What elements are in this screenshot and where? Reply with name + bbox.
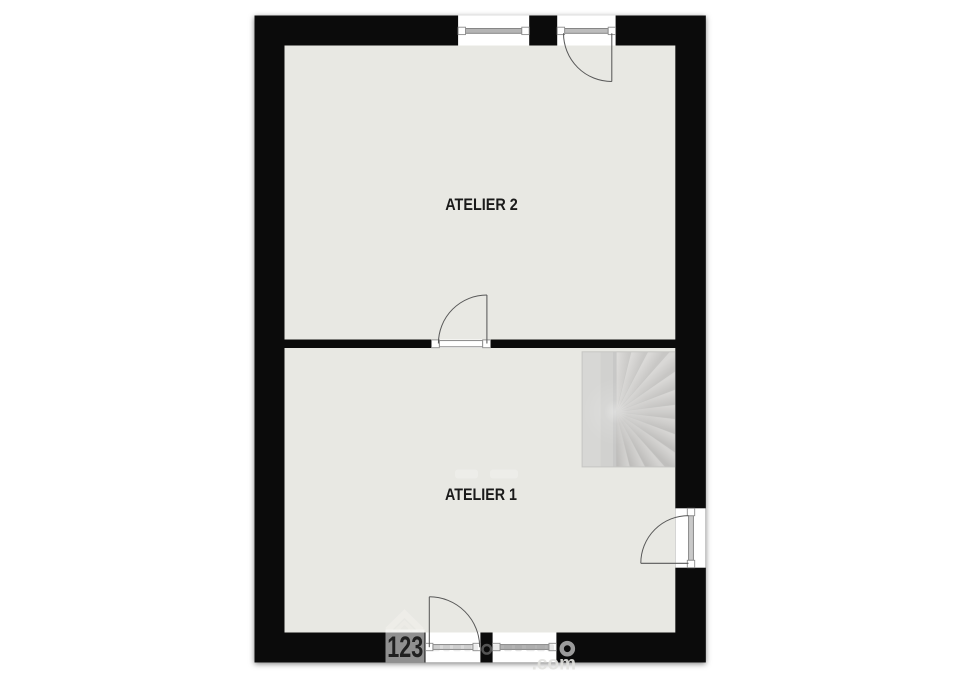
svg-text:ATELIER 1: ATELIER 1 — [445, 485, 517, 504]
svg-text:.com: .com — [532, 654, 576, 675]
svg-text:ATELIER 2: ATELIER 2 — [445, 195, 518, 214]
svg-text:123: 123 — [387, 631, 423, 664]
